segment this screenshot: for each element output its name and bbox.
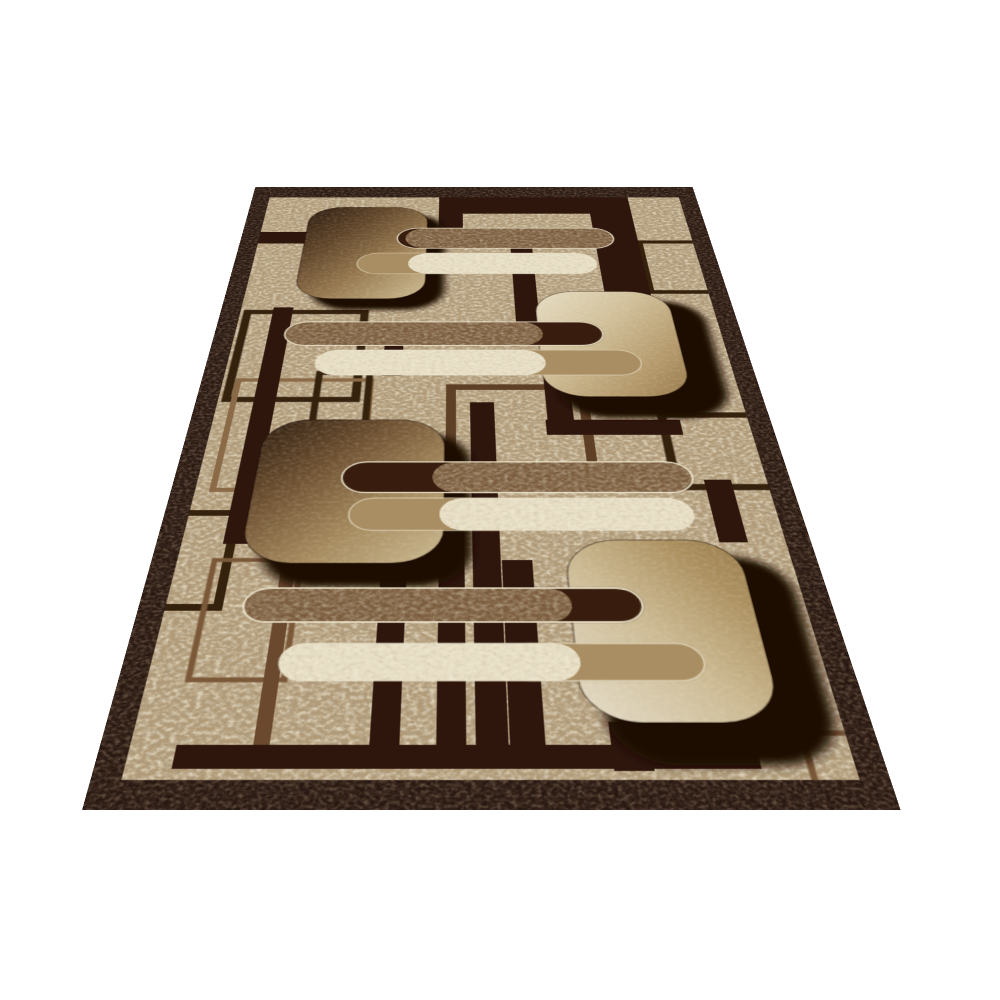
product-photo-canvas (0, 0, 1000, 1000)
rug-product-photo (82, 187, 901, 810)
rug-graphic (82, 187, 901, 810)
